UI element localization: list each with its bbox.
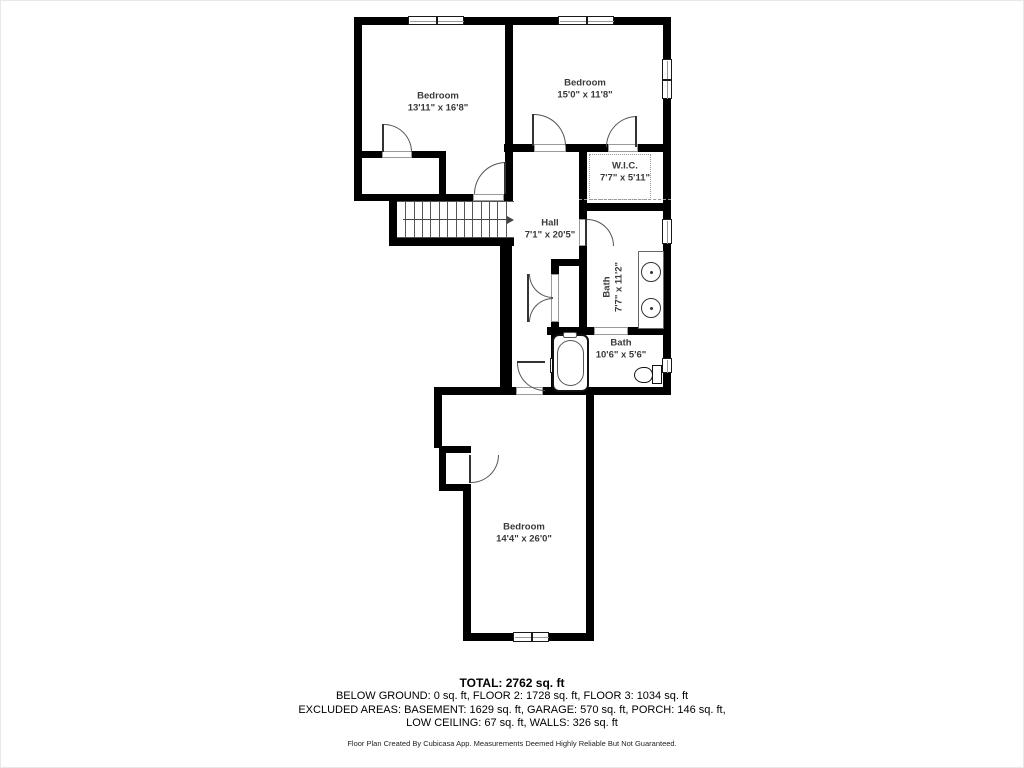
door-leaf (517, 361, 545, 363)
room-name: Bath (596, 338, 647, 350)
room-dimensions: 10'6" x 5'6" (596, 349, 647, 361)
window-divider (531, 633, 533, 641)
staircase (397, 201, 514, 238)
room-label-bath-main: Bath7'7" x 11'2" (602, 262, 625, 312)
door-swing-arc (587, 219, 614, 246)
room-label-bedroom-top-left: Bedroom13'11" x 16'8" (408, 91, 469, 114)
room-label-bedroom-top-right: Bedroom15'0" x 11'8" (557, 78, 612, 101)
door-swing-arc (606, 116, 637, 147)
wall (504, 144, 671, 152)
window (513, 632, 549, 642)
room-name: Bedroom (496, 522, 552, 534)
door-swing-arc (471, 455, 499, 483)
door-leaf (585, 219, 587, 246)
window (662, 59, 672, 99)
room-dimensions: 13'11" x 16'8" (408, 102, 469, 114)
wall (463, 484, 471, 639)
window-divider (663, 79, 671, 81)
room-name: Bedroom (408, 91, 469, 103)
door-leaf (635, 116, 637, 147)
disclaimer-text: Floor Plan Created By Cubicasa App. Meas… (1, 739, 1023, 748)
bathtub-basin (557, 340, 584, 386)
window (558, 16, 614, 25)
bathtub-faucet (563, 332, 577, 338)
room-dimensions: 7'7" x 5'11" (600, 172, 650, 184)
window-center-line (667, 360, 668, 373)
room-dimensions: 15'0" x 11'8" (557, 89, 612, 101)
door-opening (382, 151, 412, 158)
room-dimensions: 7'7" x 11'2" (613, 262, 625, 312)
door-leaf (382, 124, 384, 152)
room-dimensions: 14'4" x 26'0" (496, 533, 552, 545)
wall (505, 17, 513, 204)
door-opening (594, 327, 628, 335)
summary-footer: TOTAL: 2762 sq. ft BELOW GROUND: 0 sq. f… (1, 676, 1023, 748)
door-leaf (504, 162, 506, 194)
wall (500, 246, 512, 387)
window (408, 16, 464, 25)
room-label-walk-in-closet: W.I.C.7'7" x 5'11" (600, 161, 650, 184)
room-label-bedroom-bottom: Bedroom14'4" x 26'0" (496, 522, 552, 545)
excluded-areas-text-2: LOW CEILING: 67 sq. ft, WALLS: 326 sq. f… (1, 717, 1023, 731)
room-name: Bath (602, 262, 614, 312)
door-opening (473, 194, 504, 201)
toilet-tank (652, 365, 662, 384)
room-label-bath-small: Bath10'6" x 5'6" (596, 338, 647, 361)
toilet-bowl (634, 367, 653, 383)
closet-dashed-line (579, 199, 671, 200)
floor-plan-page: Bedroom13'11" x 16'8"Bedroom15'0" x 11'8… (0, 0, 1024, 768)
room-name: Hall (525, 218, 576, 230)
room-name: W.I.C. (600, 161, 650, 173)
floor-plan: Bedroom13'11" x 16'8"Bedroom15'0" x 11'8… (1, 1, 1024, 768)
floor-areas-text: BELOW GROUND: 0 sq. ft, FLOOR 2: 1728 sq… (1, 690, 1023, 704)
wall (586, 395, 594, 641)
door-swing-arc (529, 274, 553, 298)
bathroom-sink (641, 298, 661, 318)
room-dimensions: 7'1" x 20'5" (525, 229, 576, 241)
wall (354, 17, 362, 201)
bathtub (552, 334, 589, 392)
room-name: Bedroom (557, 78, 612, 90)
room-label-hall: Hall7'1" x 20'5" (525, 218, 576, 241)
window-divider (436, 17, 438, 24)
excluded-areas-text: EXCLUDED AREAS: BASEMENT: 1629 sq. ft, G… (1, 704, 1023, 718)
door-swing-arc (474, 162, 506, 194)
window (662, 219, 672, 244)
door-leaf (527, 274, 529, 298)
wall (389, 238, 514, 246)
wall (434, 387, 442, 448)
stairs-arrow-head (507, 216, 514, 224)
door-swing-arc (384, 124, 412, 152)
total-area-text: TOTAL: 2762 sq. ft (1, 676, 1023, 690)
door-leaf (532, 114, 534, 146)
wall (579, 203, 671, 211)
window (662, 358, 672, 373)
door-leaf (527, 298, 529, 322)
door-leaf (469, 455, 471, 483)
sink-drain-dot (650, 307, 653, 310)
window-center-line (667, 221, 668, 244)
door-swing-arc (529, 298, 553, 322)
window-divider (586, 17, 588, 24)
door-swing-arc (534, 114, 566, 146)
stairs-direction-arrow (403, 219, 509, 220)
sink-drain-dot (650, 271, 653, 274)
bathroom-sink (641, 262, 661, 282)
